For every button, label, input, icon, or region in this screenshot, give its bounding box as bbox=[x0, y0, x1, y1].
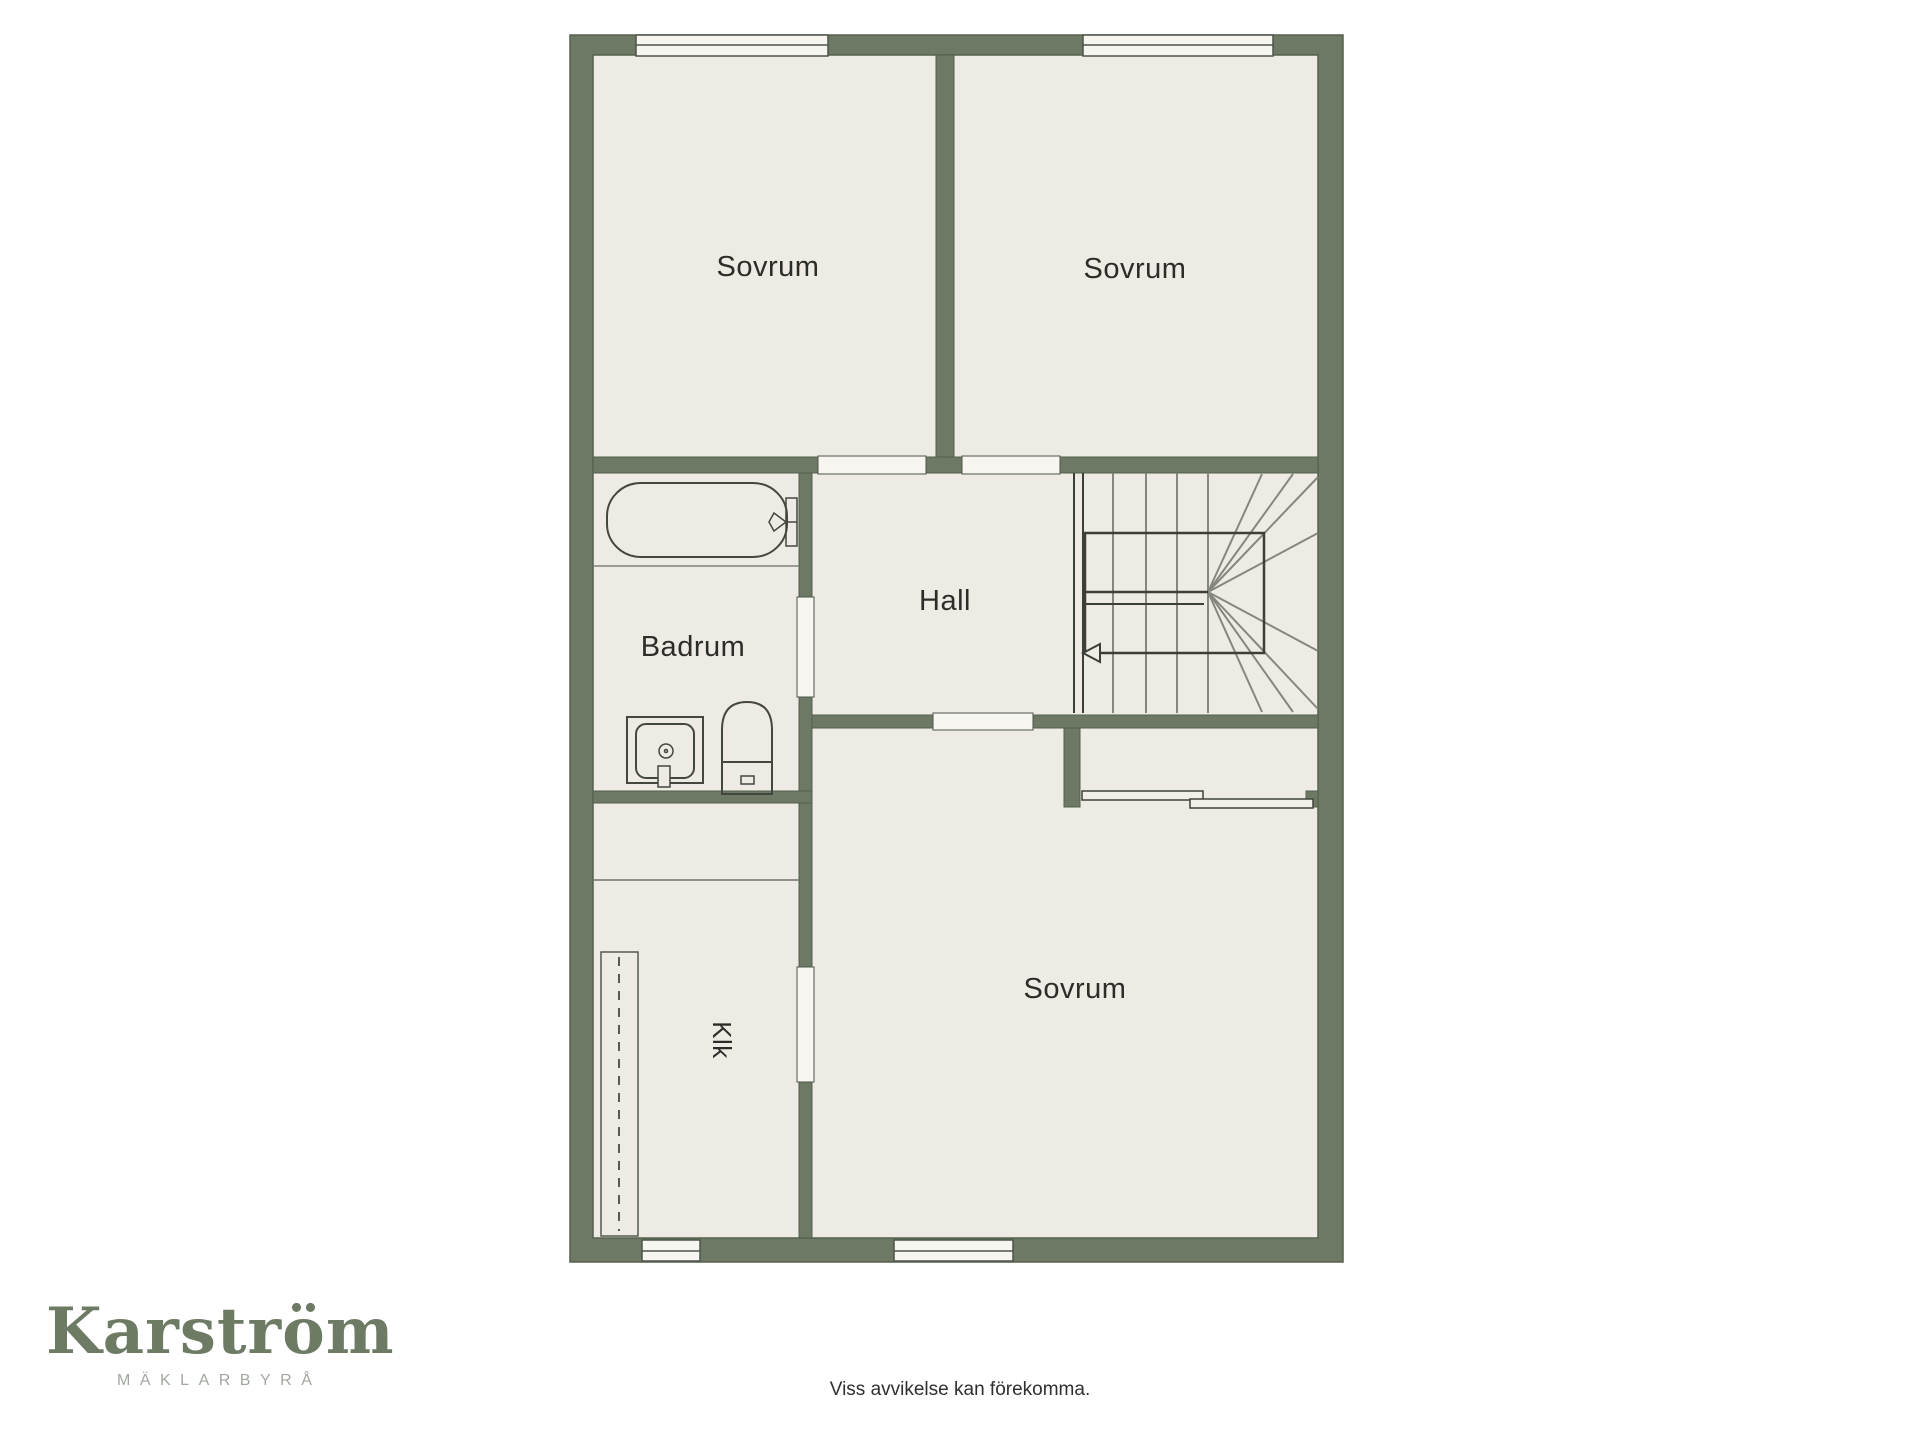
wall-hall-bottom bbox=[812, 715, 1318, 728]
brand-logo: Karström bbox=[46, 1294, 395, 1369]
floor-plan: Sovrum Sovrum Badrum Hall Sovrum Klk bbox=[0, 0, 1920, 1440]
room-label-klk: Klk bbox=[707, 1021, 737, 1059]
wall-badrum-klk-right bbox=[799, 473, 812, 1238]
window-bottom-sovrum bbox=[894, 1240, 1013, 1261]
disclaimer-text: Viss avvikelse kan förekomma. bbox=[0, 1379, 1920, 1401]
room-label-badrum: Badrum bbox=[641, 631, 746, 663]
room-label-sovrum-top-right: Sovrum bbox=[1084, 253, 1187, 285]
door-sovrum1-hall bbox=[818, 456, 926, 474]
floorplan-page: Sovrum Sovrum Badrum Hall Sovrum Klk Kar… bbox=[0, 0, 1920, 1440]
wall-stub-under-stairs bbox=[1064, 728, 1080, 807]
wall-bedroom-divider bbox=[936, 55, 954, 473]
room-label-hall: Hall bbox=[919, 585, 971, 617]
window-top-right bbox=[1083, 35, 1273, 56]
door-sovrum2-hall bbox=[962, 456, 1060, 474]
window-bottom-klk bbox=[642, 1240, 700, 1261]
door-hall-sovrum3 bbox=[933, 713, 1033, 730]
room-label-sovrum-bottom: Sovrum bbox=[1024, 973, 1127, 1005]
door-hall-badrum bbox=[797, 597, 814, 697]
room-label-sovrum-top-left: Sovrum bbox=[717, 251, 820, 283]
window-top-left bbox=[636, 35, 828, 56]
door-sovrum3-klk bbox=[797, 967, 814, 1082]
wall-badrum-bottom bbox=[593, 791, 812, 803]
wall-middle bbox=[593, 457, 1318, 473]
